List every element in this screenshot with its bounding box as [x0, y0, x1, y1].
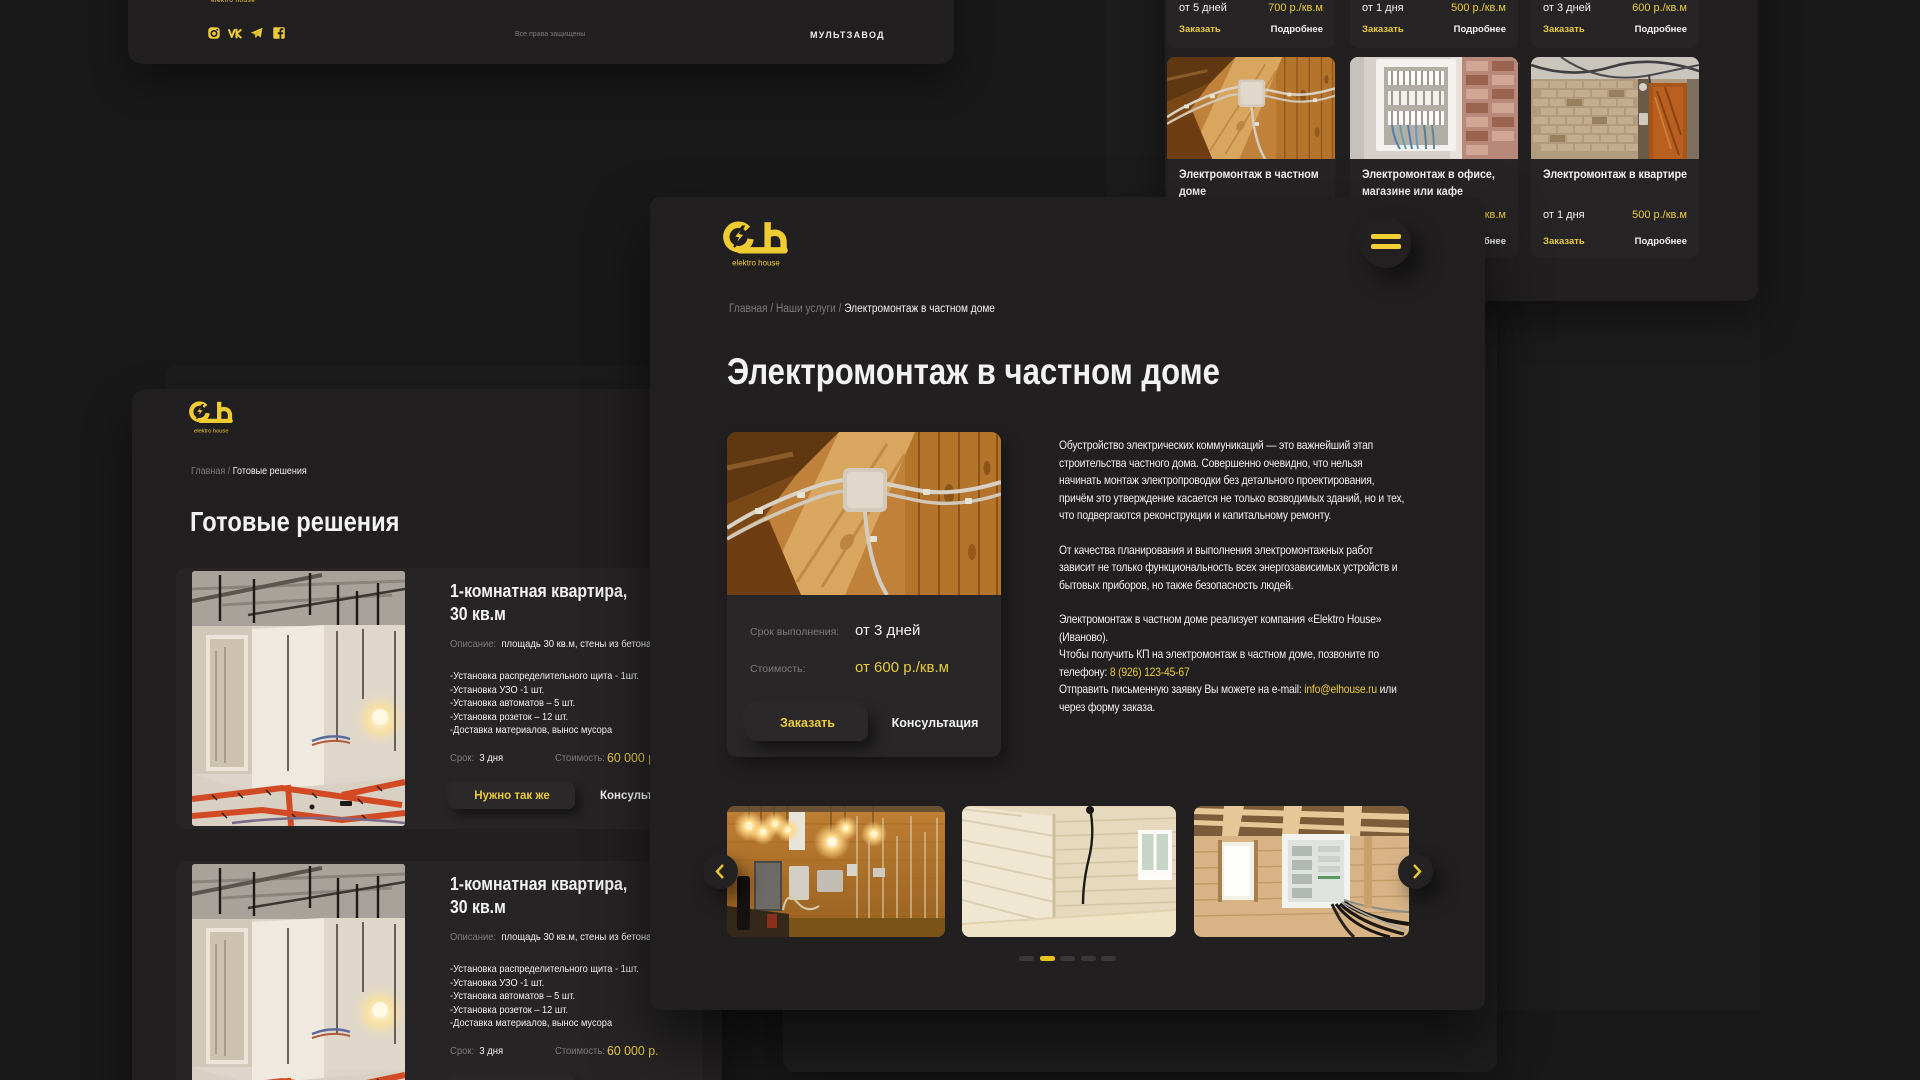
svg-text:elektro house: elektro house — [194, 429, 229, 435]
svg-text:elektro house: elektro house — [732, 259, 780, 268]
